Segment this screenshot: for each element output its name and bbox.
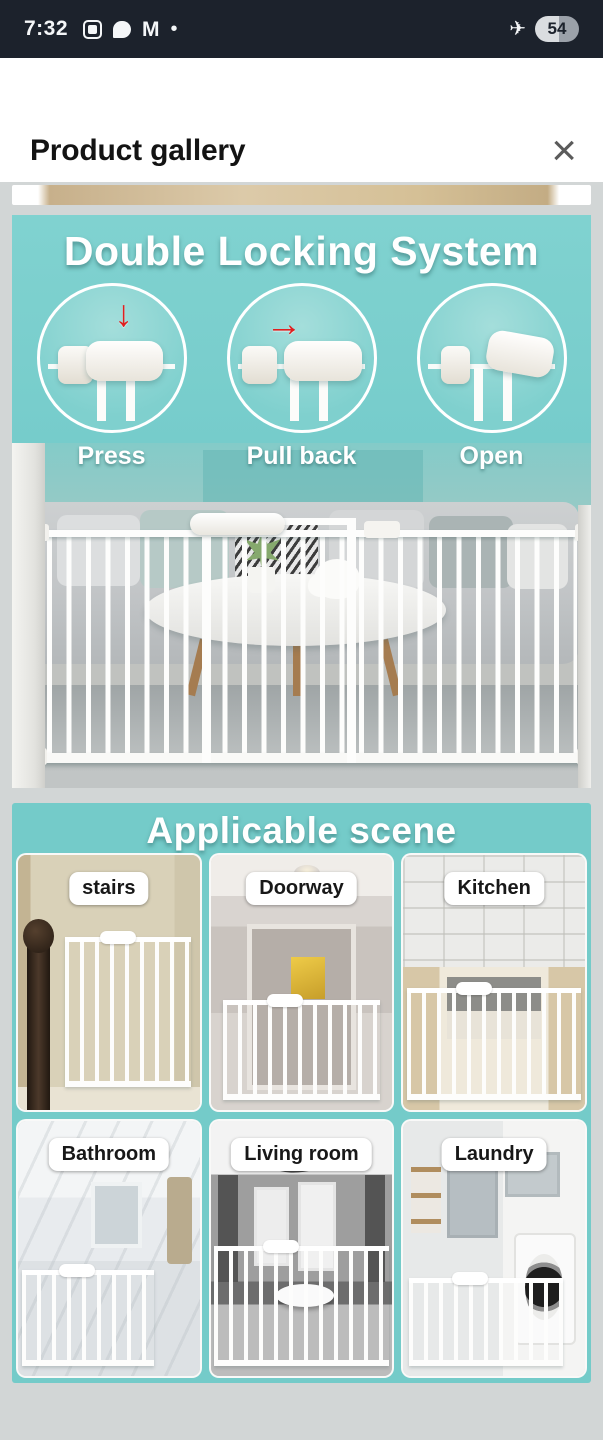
gate-bars — [47, 534, 577, 757]
safety-gate — [409, 1278, 563, 1366]
gate-door-frame — [202, 518, 211, 763]
gate-handle — [59, 1264, 95, 1277]
gate-top-rail — [42, 530, 582, 537]
gate-bottom-rail — [38, 753, 586, 763]
scene-label: Laundry — [442, 1138, 547, 1171]
locking-steps-row: ↓ Press → Pull back — [12, 283, 591, 471]
modal-header: Product gallery × — [0, 58, 603, 182]
airplane-mode-icon: ✈ — [509, 19, 526, 39]
close-button[interactable]: × — [551, 136, 577, 166]
status-bar-left: 7:32 M • — [24, 17, 178, 41]
image-title: Applicable scene — [12, 810, 591, 852]
page-title: Product gallery — [30, 134, 245, 168]
gate-handle — [100, 931, 136, 944]
step-open-circle — [417, 283, 567, 433]
scene-tile-bathroom: Bathroom — [16, 1119, 202, 1378]
scene-tile-kitchen: Kitchen — [401, 853, 587, 1112]
scene-label: Living room — [231, 1138, 371, 1171]
status-bar: 7:32 M • ✈ 54 — [0, 0, 603, 58]
chat-bubble-icon — [113, 21, 131, 38]
step-pull-back-circle: → — [227, 283, 377, 433]
scene-label: stairs — [69, 872, 148, 905]
wall-picture — [291, 957, 325, 999]
status-time: 7:32 — [24, 17, 68, 41]
close-icon: × — [551, 126, 577, 175]
lock-handle-part — [86, 341, 164, 381]
step-pull-back: → Pull back — [214, 283, 390, 471]
gate-handle — [190, 513, 285, 535]
gate-latch — [364, 521, 400, 538]
scene-label: Kitchen — [444, 872, 543, 905]
phone-screen: 7:32 M • ✈ 54 Product gallery × Double L… — [0, 0, 603, 1440]
red-right-arrow-icon: → — [266, 305, 303, 342]
notification-dot-icon: • — [171, 19, 178, 39]
step-label: Open — [404, 442, 580, 471]
living-room-photo — [12, 443, 591, 788]
gmail-icon: M — [142, 19, 160, 40]
gate-post-part — [503, 368, 512, 421]
laundry-shelf — [411, 1167, 442, 1233]
stair-newel-post — [27, 932, 50, 1111]
gate-post-part — [474, 368, 483, 421]
screen-capture-icon — [83, 20, 102, 39]
status-bar-right: ✈ 54 — [509, 16, 579, 42]
scene-tile-living-room: Living room — [209, 1119, 395, 1378]
image-title: Double Locking System — [12, 228, 591, 275]
safety-gate — [214, 1246, 388, 1366]
gate-handle — [263, 1240, 299, 1253]
gallery-scroll-area[interactable]: Double Locking System ↓ Press — [0, 182, 603, 1440]
gate-door-frame — [347, 518, 356, 763]
battery-indicator: 54 — [535, 16, 579, 42]
lock-handle-part — [484, 328, 556, 379]
red-down-arrow-icon: ↓ — [114, 295, 133, 332]
lock-cap-part — [441, 346, 470, 383]
bathroom-cabinet — [167, 1177, 192, 1264]
gate-handle — [456, 982, 492, 995]
header-row: Product gallery × — [30, 134, 577, 168]
bathroom-mirror — [91, 1182, 142, 1248]
scene-tile-stairs: stairs — [16, 853, 202, 1112]
wall-column-right — [578, 505, 591, 788]
product-image-double-locking-system[interactable]: Double Locking System ↓ Press — [12, 215, 591, 788]
safety-gate — [223, 1000, 379, 1100]
safety-gate — [22, 1270, 155, 1366]
step-label: Press — [24, 442, 200, 471]
safety-gate — [65, 937, 190, 1087]
gate-handle — [267, 994, 303, 1007]
scene-tile-doorway: Doorway — [209, 853, 395, 1112]
product-image-applicable-scene[interactable]: Applicable scene stairs Doorway — [12, 803, 591, 1383]
step-label: Pull back — [214, 442, 390, 471]
scene-tile-laundry: Laundry — [401, 1119, 587, 1378]
step-press: ↓ Press — [24, 283, 200, 471]
scene-label: Bathroom — [49, 1138, 169, 1171]
scene-label: Doorway — [246, 872, 356, 905]
lock-handle-part — [284, 341, 362, 381]
step-open: Open — [404, 283, 580, 471]
scene-tiles-grid: stairs Doorway Kitchen — [16, 853, 587, 1378]
previous-image-edge[interactable] — [12, 185, 591, 205]
stair-post-ball — [23, 919, 54, 953]
step-press-circle: ↓ — [37, 283, 187, 433]
gate-handle — [452, 1272, 488, 1285]
safety-gate — [407, 988, 581, 1100]
safety-gate — [42, 530, 582, 763]
lock-cap-part — [242, 346, 277, 383]
battery-percent: 54 — [548, 19, 567, 39]
wall-column-left — [12, 443, 45, 788]
